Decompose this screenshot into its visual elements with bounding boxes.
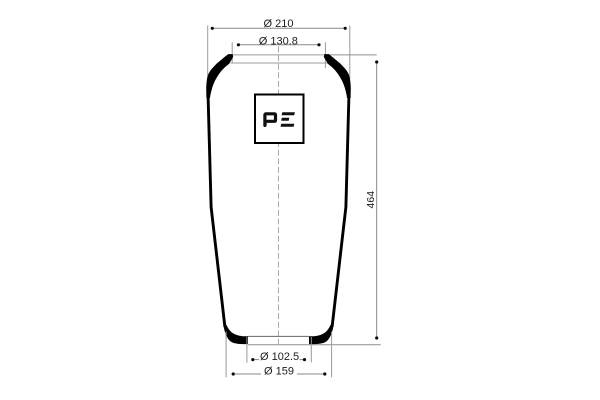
svg-text:464: 464 [365,191,377,209]
svg-text:Ø 130.8: Ø 130.8 [259,35,298,47]
svg-text:Ø 102.5: Ø 102.5 [260,351,299,363]
svg-text:Ø 159: Ø 159 [264,366,294,378]
svg-text:Ø 210: Ø 210 [264,18,294,30]
